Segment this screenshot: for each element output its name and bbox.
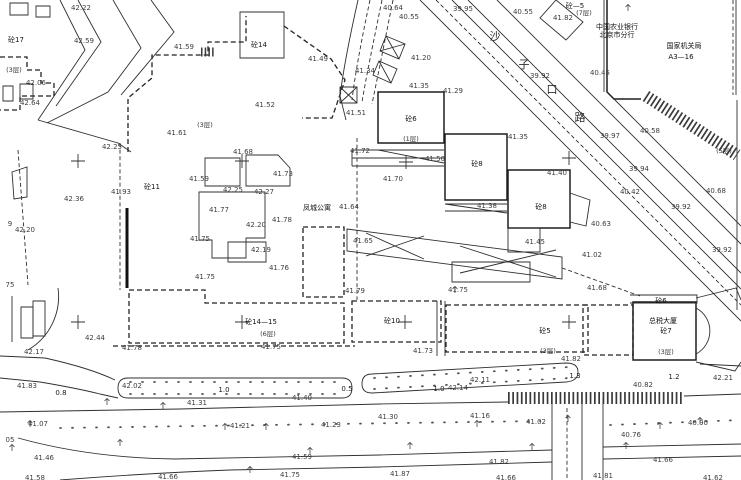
map-line [129, 290, 344, 343]
distance-label: 1.3 [569, 372, 580, 380]
grid-cross-icon [71, 315, 85, 329]
elevation-label: 40.42 [620, 188, 640, 196]
elevation-label: 42.64 [20, 99, 41, 107]
elevation-label: 39.95 [453, 5, 473, 13]
floor-count-label: (3层) [6, 66, 22, 74]
elevation-label: 41.50 [425, 155, 445, 163]
elevation-label: 41.34 [355, 67, 376, 75]
elevation-label: 41.38 [477, 202, 497, 210]
elevation-label: 41.87 [390, 470, 410, 478]
elevation-label: 42.27 [254, 188, 274, 196]
elevation-label: 41.65 [353, 237, 373, 245]
map-line [570, 193, 590, 226]
elevation-label: 41.64 [339, 203, 360, 211]
elevation-label: 42.02 [122, 382, 142, 390]
elevation-label: 75 [6, 281, 15, 289]
elevation-label: 41.78 [122, 344, 142, 352]
building-number-label: 砼11 [144, 182, 160, 191]
elevation-label: 41.75 [448, 286, 468, 294]
elevation-label: 39.94 [629, 165, 650, 173]
elevation-labels: 42.2242.5941.5942.0642.6442.2541.6140.64… [6, 4, 733, 480]
map-line [36, 6, 50, 17]
elevation-label: 41.68 [233, 148, 253, 156]
elevation-label: 9 [8, 220, 12, 228]
elevation-label: 39.92 [671, 203, 691, 211]
elevation-label: 41.46 [34, 454, 55, 462]
elevation-label: 42.44 [85, 334, 106, 342]
map-line [700, 364, 741, 366]
building-number-label: 砼8 [535, 202, 546, 211]
map-line [56, 0, 101, 106]
tree-dot-row [60, 421, 540, 428]
cad-survey-map: 42.2242.5941.5942.0642.6442.2541.6140.64… [0, 0, 741, 480]
elevation-label: 41.75 [195, 273, 215, 281]
elevation-label: 41.40 [547, 169, 567, 177]
elevation-label: 42.11 [470, 376, 490, 384]
map-line [362, 0, 382, 102]
map-line [508, 170, 570, 228]
tree-icon [530, 444, 535, 451]
map-line [21, 307, 33, 338]
floor-count-label: (6层) [260, 330, 276, 338]
distance-label: 0.5 [341, 385, 352, 393]
tree-icon [475, 421, 480, 428]
building-number-label: 砼8 [471, 159, 482, 168]
elevation-label: 40.45 [590, 69, 610, 77]
elevation-label: 41.40 [292, 394, 312, 402]
place-name-label: 总税大厦 [649, 316, 677, 325]
grid-cross-icon [235, 154, 249, 168]
elevation-label: 41.02 [582, 251, 602, 259]
grid-cross-icon [562, 315, 576, 329]
street-name-char: 口 [547, 83, 558, 96]
elevation-label: 42.22 [71, 4, 91, 12]
elevation-label: 42.20 [15, 226, 35, 234]
elevation-label: 42.19 [251, 246, 271, 254]
map-line [240, 12, 284, 58]
elevation-label: 40.76 [621, 431, 642, 439]
map-line [696, 362, 741, 371]
elevation-label: 40.58 [640, 127, 660, 135]
map-line [121, 0, 174, 95]
tree-icon [105, 399, 110, 406]
map-line [47, 0, 141, 123]
building-number-labels: 砼17砼14砼—5砼11砼6砼8砼8砼14—15砼10砼5砼6砼7 [8, 1, 672, 335]
distance-label: 1.0 [433, 385, 444, 393]
tree-icon [624, 443, 629, 450]
elevation-label: 42.17 [24, 348, 44, 356]
map-line [0, 402, 508, 412]
elevation-label: 41.52 [255, 101, 275, 109]
elevation-label: 41.81 [593, 472, 613, 480]
grid-cross-icon [398, 315, 412, 329]
elevation-label: 40.82 [633, 381, 653, 389]
building-number-label: 砼17 [8, 35, 24, 44]
building-number-label: 砼5 [539, 326, 550, 335]
elevation-label: 41.76 [269, 264, 290, 272]
elevation-label: 41.31 [187, 399, 207, 407]
floor-count-labels: (3层)(3层)(7层)(1层)(5层)(6层)(3层)(3层) [6, 9, 732, 356]
elevation-label: 41.20 [411, 54, 431, 62]
place-name-label: 凤城公寓 [303, 203, 331, 212]
elevation-label: 41.70 [383, 175, 403, 183]
tree-icon [408, 443, 413, 450]
elevation-label: 41.73 [413, 347, 433, 355]
distance-label: 1.0 [218, 386, 229, 394]
map-line [284, 26, 345, 118]
floor-count-label: (5层) [716, 147, 732, 155]
floor-count-label: (3层) [658, 348, 674, 356]
grid-cross-icon [399, 155, 413, 169]
map-line [18, 438, 552, 459]
elevation-label: 41.51 [346, 109, 366, 117]
elevation-label: 41.66 [653, 456, 674, 464]
map-line [583, 305, 633, 355]
map-line [366, 233, 424, 259]
elevation-label: 41.82 [553, 14, 573, 22]
elevation-label: 41.78 [272, 216, 292, 224]
floor-count-label: (3层) [540, 347, 556, 355]
elevation-label: 41.75 [190, 235, 210, 243]
elevation-label: 41.73 [273, 170, 293, 178]
map-line [60, 462, 552, 480]
elevation-label: 39.92 [712, 246, 732, 254]
elevation-label: 41.21 [230, 422, 250, 430]
map-line [0, 356, 115, 380]
elevation-label: 42.20 [246, 221, 266, 229]
place-name-label: 北京市分行 [600, 30, 635, 39]
building-number-label: 砼6 [405, 114, 417, 123]
map-line [33, 301, 45, 336]
street-name-char: 子 [519, 58, 530, 71]
elevation-label: 42.21 [713, 374, 733, 382]
map-line [38, 0, 85, 120]
grid-cross-icon [562, 151, 576, 165]
elevation-label: 05 [6, 436, 15, 444]
elevation-label: 41.79 [345, 287, 365, 295]
elevation-label: 41.83 [17, 382, 37, 390]
distance-label: 0.8 [55, 389, 66, 397]
grid-cross-icon [71, 154, 85, 168]
tree-icon [626, 5, 631, 12]
site-plan-drawing: 42.2242.5941.5942.0642.6442.2541.6140.64… [0, 0, 741, 480]
elevation-label: 40.64 [383, 4, 404, 12]
tree-icon [223, 424, 228, 431]
elevation-label: 41.66 [496, 474, 517, 480]
elevation-label: 41.61 [167, 129, 187, 137]
map-line [684, 394, 741, 396]
street-name-char: 沙 [490, 30, 501, 43]
place-name-label: 中国农业银行 [596, 22, 638, 31]
tree-icon [566, 416, 571, 423]
building-number-label: 砼6 [655, 296, 667, 305]
distance-label: 1.2 [668, 373, 679, 381]
floor-count-label: (7层) [576, 9, 592, 17]
elevation-label: 41.07 [28, 420, 48, 428]
elevation-label: 41.35 [508, 133, 528, 141]
elevation-label: 41.35 [409, 82, 429, 90]
elevation-label: 41.16 [470, 412, 491, 420]
place-name-label: 国家机关局 [667, 41, 702, 50]
tree-dot-rows [60, 367, 741, 428]
elevation-label: 42.14 [448, 384, 469, 392]
map-line [3, 86, 13, 101]
map-line [18, 150, 28, 285]
map-line [696, 308, 710, 354]
elevation-label: 42.59 [74, 37, 94, 45]
elevation-label: 41.93 [111, 188, 131, 196]
elevation-label: 41.23 [321, 421, 341, 429]
elevation-label: 41.45 [525, 238, 545, 246]
elevation-label: 40.63 [591, 220, 611, 228]
map-line [205, 158, 240, 186]
elevation-label: 40.55 [399, 13, 419, 21]
elevation-label: 41.72 [350, 147, 370, 155]
map-line [10, 3, 28, 15]
elevation-label: 41.30 [378, 413, 398, 421]
building-number-label: 砼14—15 [245, 317, 277, 326]
tree-icon [161, 403, 166, 410]
building-number-label: 砼10 [384, 316, 400, 325]
elevation-label: 41.59 [189, 175, 209, 183]
place-name-label: A3—16 [668, 53, 694, 61]
elevation-label: 41.82 [489, 458, 509, 466]
floor-count-label: (1层) [403, 135, 419, 143]
elevation-label: 41.68 [587, 284, 607, 292]
elevation-label: 41.77 [209, 206, 229, 214]
elevation-label: 40.55 [513, 8, 533, 16]
elevation-label: 41.75 [280, 471, 300, 479]
map-line [607, 0, 641, 99]
elevation-label: 42.06 [26, 79, 47, 87]
elevation-label: 41.02 [526, 418, 546, 426]
building-number-label: 砼7 [660, 326, 671, 335]
elevation-label: 41.75 [261, 343, 281, 351]
map-line [446, 305, 588, 352]
elevation-label: 41.66 [158, 473, 179, 480]
elevation-label: 42.25 [102, 143, 122, 151]
elevation-label: 42.36 [64, 195, 85, 203]
elevation-label: 41.59 [174, 43, 194, 51]
street-name-char: 路 [575, 111, 586, 124]
map-line [303, 227, 344, 297]
elevation-label: 39.97 [600, 132, 620, 140]
grid-crosses [71, 151, 576, 329]
tree-icon [118, 440, 123, 447]
map-line [118, 378, 352, 398]
elevation-label: 39.92 [530, 72, 550, 80]
tree-dot-row [610, 420, 741, 425]
elevation-label: 40.90 [688, 419, 708, 427]
tree-icon [10, 445, 15, 452]
elevation-label: 41.58 [25, 474, 45, 480]
elevation-label: 41.59 [292, 453, 312, 461]
floor-count-label: (3层) [197, 121, 213, 129]
elevation-label: 41.49 [308, 55, 328, 63]
elevation-label: 41.29 [443, 87, 463, 95]
elevation-label: 40.68 [706, 187, 726, 195]
elevation-label: 42.25 [223, 186, 243, 194]
elevation-label: 41.82 [561, 355, 581, 363]
map-line [340, 87, 357, 103]
building-number-label: 砼14 [251, 40, 267, 49]
elevation-label: 41.62 [703, 474, 723, 480]
